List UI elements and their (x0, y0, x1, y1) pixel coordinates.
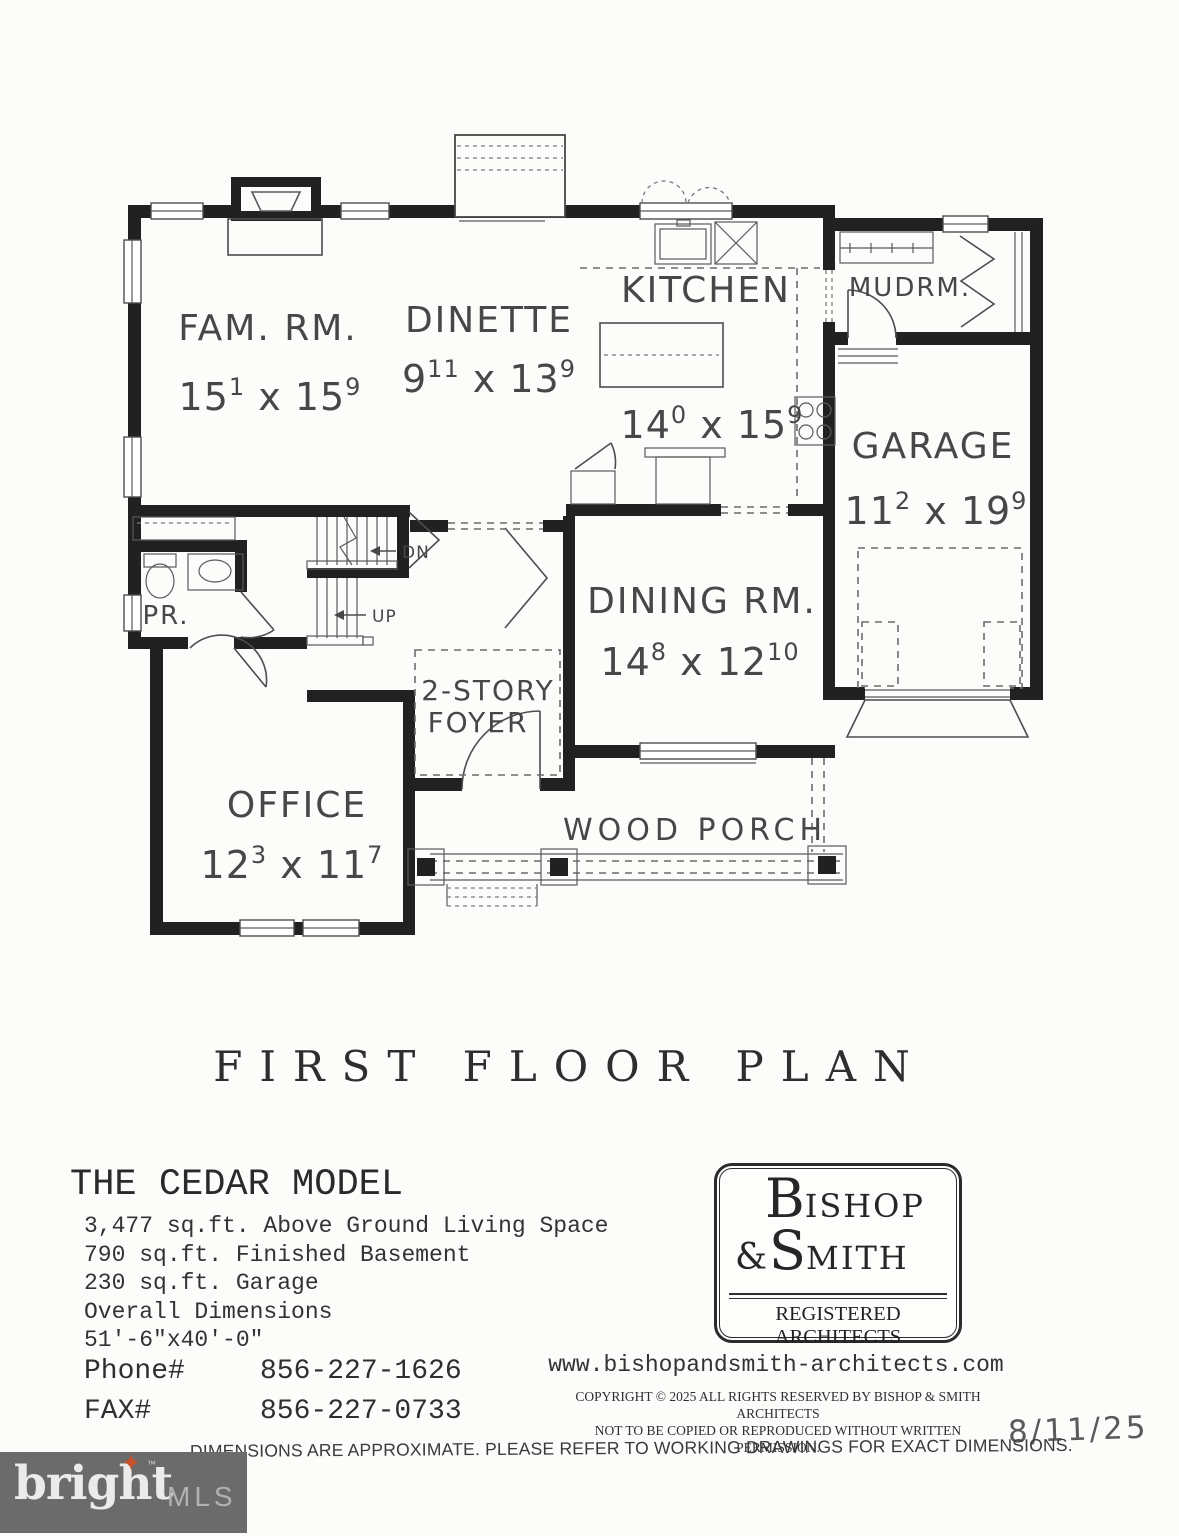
logo-bishop-rest: ISHOP (805, 1187, 925, 1225)
star-icon: ✦ (121, 1449, 141, 1478)
contact-block: Phone# 856-227-1626 FAX# 856-227-0733 (84, 1356, 462, 1436)
logo-letter-s: S (769, 1219, 806, 1282)
window (240, 920, 294, 936)
toilet (144, 554, 176, 598)
window (943, 216, 988, 232)
stairs: DN UP (307, 517, 430, 645)
fireplace (228, 182, 322, 255)
refrigerator (645, 448, 725, 504)
garage-door (865, 687, 1010, 700)
powder-room-fixtures (144, 554, 243, 598)
kitchen-sink (655, 220, 711, 264)
garage-details (847, 548, 1028, 737)
kitchen-mudroom-opening (823, 270, 835, 322)
cased-opening-kitchen-dining (721, 507, 788, 513)
chimney (455, 135, 565, 221)
room-dim-dining: 148 x 1210 (600, 638, 799, 684)
room-label-kitchen: KITCHEN (621, 270, 791, 311)
room-label-family: FAM. RM. (178, 308, 358, 349)
room-label-garage: GARAGE (852, 426, 1015, 467)
hall-closet-bifold-door (505, 528, 547, 628)
porch-post (808, 846, 846, 884)
spec-overall-dimensions-label: Overall Dimensions (84, 1298, 609, 1327)
trademark-symbol: ™ (147, 1459, 156, 1469)
copyright-line1: COPYRIGHT © 2025 ALL RIGHTS RESERVED BY … (552, 1388, 1004, 1422)
mls-label: MLS (167, 1481, 237, 1513)
spec-garage: 230 sq.ft. Garage (84, 1269, 609, 1298)
first-floor-plan-drawing: DN UP (0, 0, 1179, 1010)
logo-ampersand: & (735, 1237, 767, 1278)
logo-divider (729, 1293, 947, 1299)
stairs-down-flight (307, 517, 397, 569)
stair-down-arrow (370, 546, 396, 556)
cased-opening-hall (448, 523, 543, 529)
room-label-dinette: DINETTE (405, 300, 573, 341)
room-label-powder: PR. (142, 601, 189, 631)
window (124, 437, 141, 497)
window (303, 920, 359, 936)
spec-living-space: 3,477 sq.ft. Above Ground Living Space (84, 1212, 609, 1241)
stairs-up-flight (307, 578, 373, 645)
room-label-foyer-line1: 2-STORY (421, 674, 555, 707)
model-info-block: THE CEDAR MODEL 3,477 sq.ft. Above Groun… (70, 1164, 609, 1355)
dimensions-disclaimer: DIMENSIONS ARE APPROXIMATE. PLEASE REFER… (190, 1435, 1073, 1462)
spec-overall-dimensions-value: 51'-6"x40'-0" (84, 1326, 609, 1355)
room-dim-family: 151 x 159 (179, 373, 362, 419)
architect-logo: BISHOP &SMITH REGISTERED ARCHITECTS (714, 1163, 962, 1343)
floor-plan-sheet: DN UP (0, 0, 1179, 1536)
room-label-porch: WOOD PORCH (563, 813, 827, 848)
fax-label: FAX# (84, 1396, 260, 1427)
room-dim-kitchen: 140 x 159 (621, 401, 804, 447)
room-dim-garage: 112 x 199 (845, 487, 1028, 533)
logo-smith-rest: MITH (806, 1239, 909, 1277)
kitchen-island (600, 323, 723, 387)
room-label-dining: DINING RM. (587, 581, 817, 622)
room-label-office: OFFICE (227, 785, 367, 826)
stair-label-up: UP (372, 607, 397, 627)
stair-up-arrow (334, 610, 366, 620)
window-seat (133, 517, 235, 540)
window (151, 203, 203, 219)
phone-label: Phone# (84, 1356, 260, 1387)
garage-apron (847, 700, 1028, 737)
garage-steps (838, 349, 898, 363)
architect-website: www.bishopandsmith-architects.com (548, 1352, 1004, 1378)
window (640, 181, 732, 219)
powder-room-door (241, 592, 274, 638)
window (124, 595, 141, 631)
model-name: THE CEDAR MODEL (70, 1164, 609, 1206)
spec-basement: 790 sq.ft. Finished Basement (84, 1241, 609, 1270)
window (341, 203, 389, 219)
stair-label-down: DN (402, 543, 430, 563)
drawing-title: FIRST FLOOR PLAN (0, 1042, 1140, 1091)
phone-number: 856-227-1626 (260, 1356, 462, 1387)
room-label-foyer-line2: FOYER (428, 706, 529, 739)
logo-subtitle: REGISTERED ARCHITECTS (717, 1303, 959, 1349)
porch-steps (447, 884, 537, 906)
room-dim-dinette: 911 x 139 (402, 355, 576, 401)
bright-mls-watermark: bright ✦ ™ MLS (0, 1452, 247, 1533)
dishwasher (715, 222, 757, 264)
pantry-door (571, 443, 616, 504)
kitchen-fixtures (580, 220, 835, 504)
vanity-sink (188, 554, 243, 590)
garage-ceiling-line (858, 548, 1022, 688)
window (124, 240, 141, 303)
fax-number: 856-227-0733 (260, 1396, 462, 1427)
window (640, 743, 756, 763)
room-label-mudroom: MUDRM. (849, 273, 971, 303)
room-dim-office: 123 x 117 (201, 841, 384, 887)
